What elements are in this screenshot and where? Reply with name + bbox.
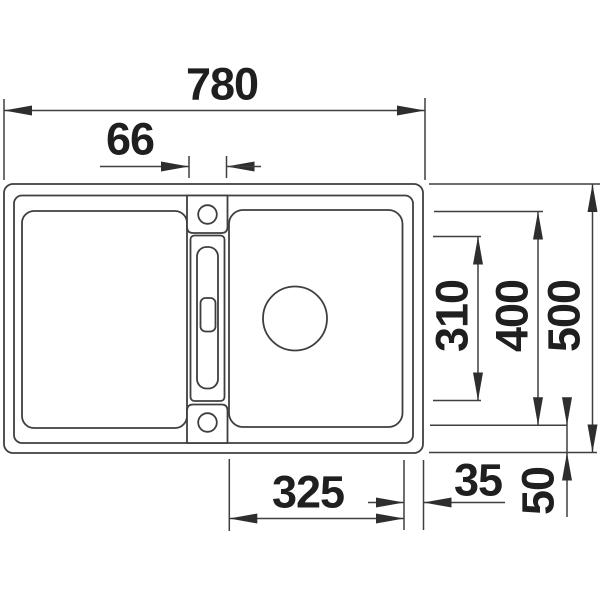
sink-outline (4, 184, 423, 453)
arrow-down-icon (473, 373, 483, 401)
dim-label-overall-width: 780 (186, 62, 258, 107)
dim-label-bowl-width: 325 (272, 470, 344, 515)
dim-front-offset (562, 397, 572, 517)
arrow-down-icon (533, 397, 543, 425)
dim-label-inner-depth: 310 (430, 280, 475, 352)
dim-label-side-offset: 35 (454, 458, 502, 503)
dim-label-bowl-depth: 400 (490, 280, 535, 352)
dim-label-divider-width: 66 (106, 117, 154, 162)
left-bowl (22, 211, 187, 428)
divider-column (191, 236, 225, 402)
arrow-down-icon (588, 425, 598, 453)
arrow-left-icon (229, 514, 257, 524)
arrow-right-icon (376, 498, 404, 508)
arrow-down-icon (562, 397, 572, 425)
arrow-left-icon (424, 498, 452, 508)
dim-label-overall-depth: 500 (542, 280, 587, 352)
arrow-right-icon (161, 162, 189, 172)
tap-plate-bottom (187, 405, 228, 444)
right-bowl (229, 210, 403, 427)
tap-plate-top (187, 196, 228, 234)
arrow-left-icon (4, 106, 32, 116)
arrow-up-icon (533, 212, 543, 240)
drain-circle (263, 287, 327, 351)
arrow-up-icon (562, 453, 572, 481)
arrow-up-icon (473, 237, 483, 265)
arrow-right-icon (397, 106, 425, 116)
sink-dimension-drawing: 780 66 310 400 500 325 35 50 (0, 0, 600, 600)
arrow-right-icon (376, 514, 404, 524)
arrow-up-icon (588, 184, 598, 212)
divider-slot-insert (201, 298, 216, 332)
dim-label-front-offset: 50 (516, 467, 561, 515)
dim-overall-width (4, 98, 425, 180)
